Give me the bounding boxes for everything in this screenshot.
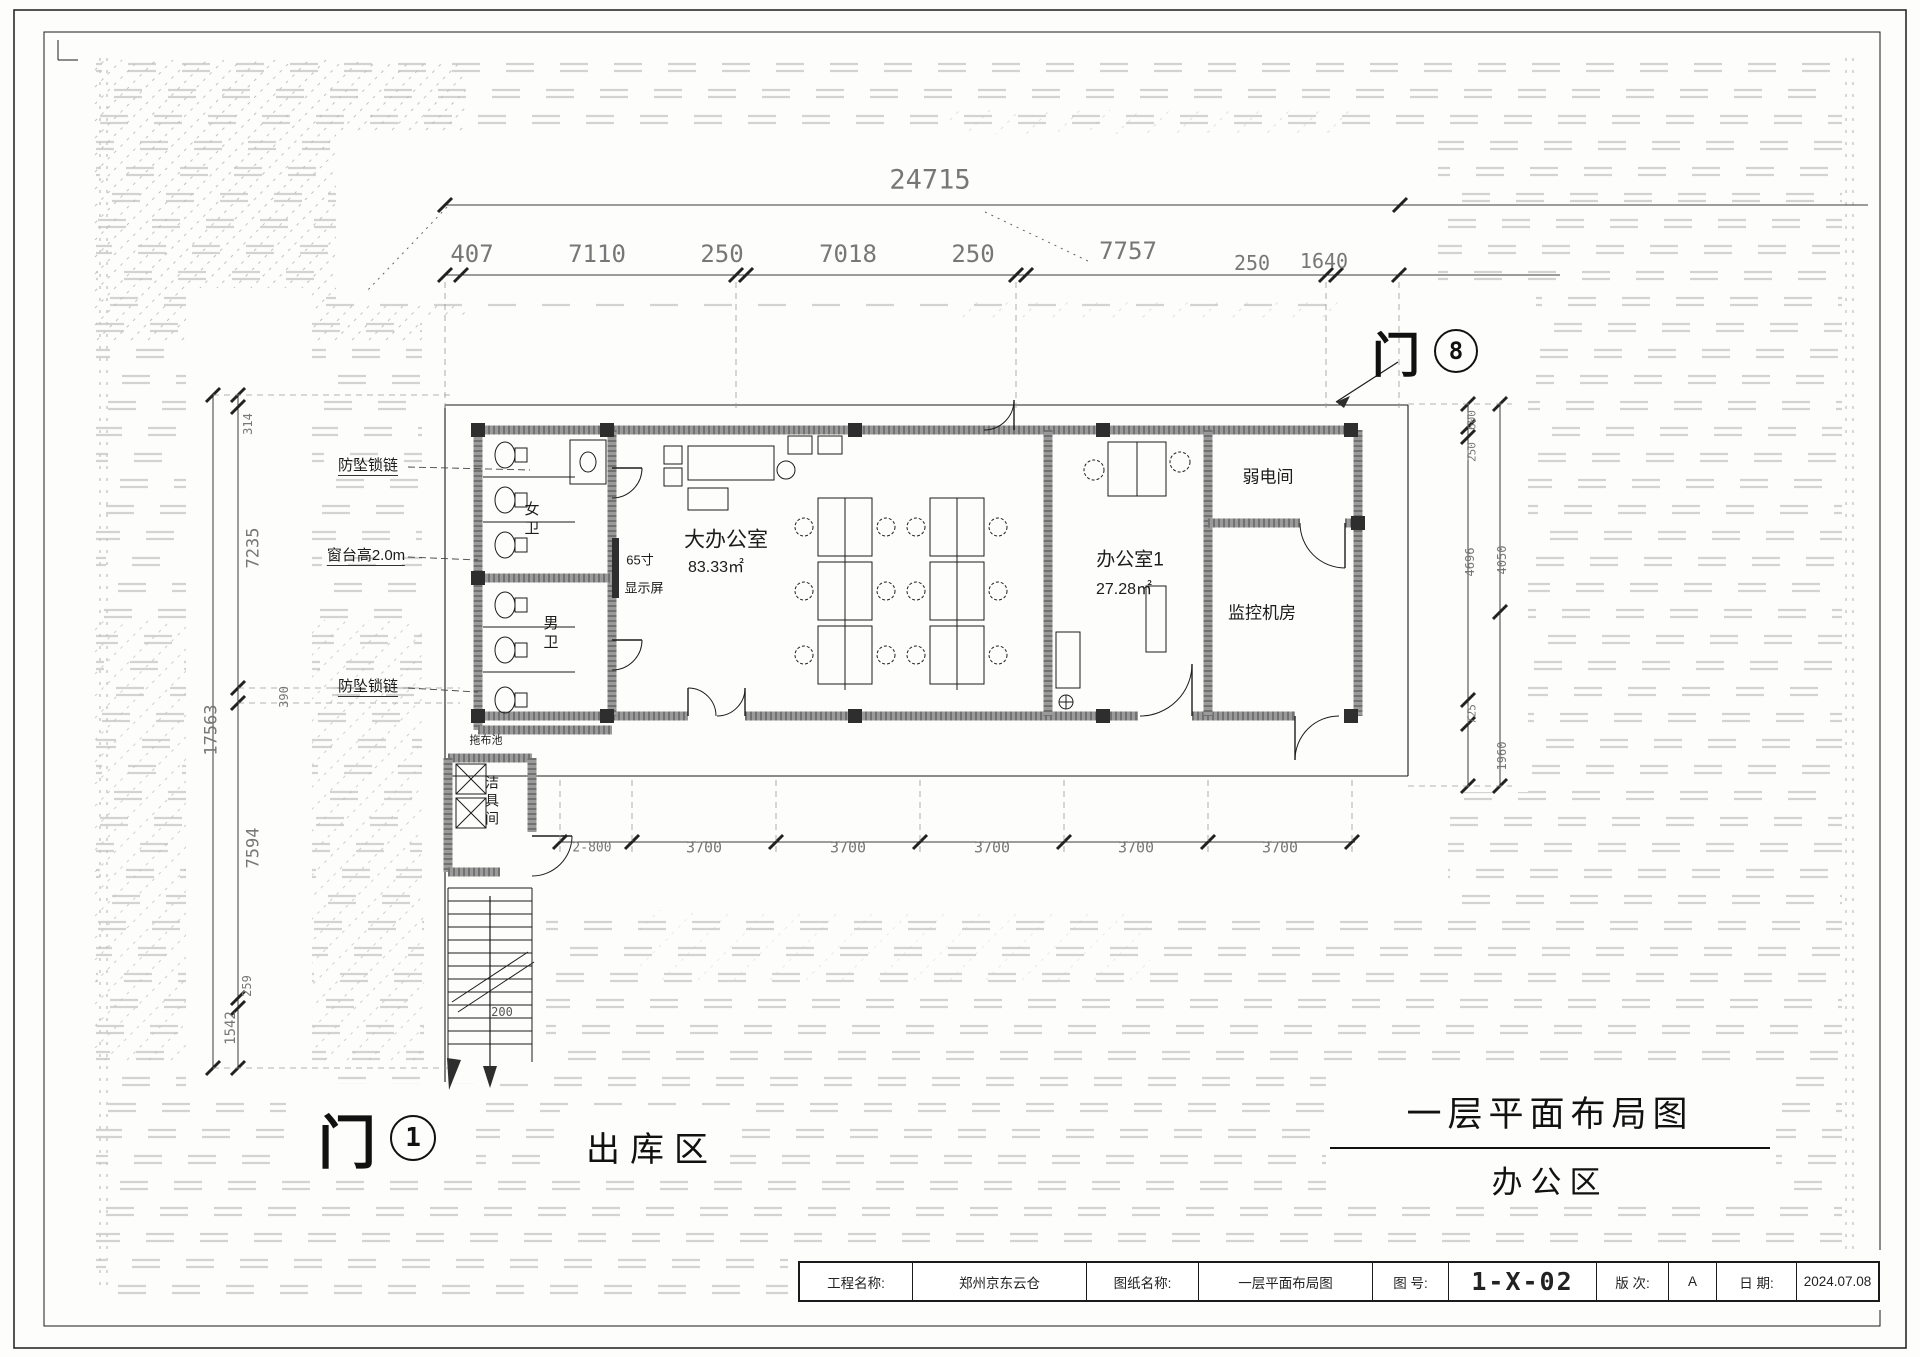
dim-left-6: 1542	[224, 1011, 238, 1045]
tb-date-label: 日 期:	[1716, 1263, 1796, 1300]
note-anti-fall-chain-2: 防坠锁链	[338, 679, 398, 697]
dim-left-total: 17563	[204, 704, 221, 755]
room-big-office: 大办公室	[684, 530, 768, 551]
dim-top-seg-8: 1640	[1300, 251, 1348, 271]
dim-corridor-1: 3700	[686, 841, 722, 856]
tb-project-value: 郑州京东云仓	[912, 1263, 1086, 1300]
tb-project-label: 工程名称:	[800, 1263, 912, 1300]
title-block: 工程名称: 郑州京东云仓 图纸名称: 一层平面布局图 图 号: 1-X-02 版…	[798, 1261, 1880, 1302]
dim-top-seg-7: 250	[1234, 253, 1270, 273]
tb-date-value: 2024.07.08	[1796, 1263, 1878, 1300]
door-8-callout: 门 8	[1372, 316, 1478, 386]
room-cleaning: 洁具间	[485, 775, 499, 829]
room-office-1: 办公室1	[1096, 551, 1164, 570]
dim-top-seg-2: 7110	[568, 242, 626, 266]
dim-corridor-3: 3700	[974, 841, 1010, 856]
note-sill-height: 窗台高2.0m	[327, 548, 405, 566]
tb-sheetname-value: 一层平面布局图	[1198, 1263, 1372, 1300]
dim-left-2: 7235	[246, 528, 263, 569]
dim-left-3: 390	[278, 686, 290, 708]
dim-right-5: 4050	[1496, 546, 1508, 575]
tb-number-label: 图 号:	[1372, 1263, 1448, 1300]
dim-corridor-4: 3700	[1118, 841, 1154, 856]
tb-sheetname-label: 图纸名称:	[1086, 1263, 1198, 1300]
dim-right-1: 600	[1467, 410, 1478, 430]
note-tv-size: 65寸	[626, 554, 653, 567]
main-title: 一层平面布局图	[1330, 1086, 1770, 1149]
dim-top-seg-1: 407	[450, 242, 493, 266]
room-big-office-area: 83.33㎡	[688, 560, 744, 576]
dim-corridor-2: 3700	[830, 841, 866, 856]
note-anti-fall-chain-1: 防坠锁链	[338, 458, 398, 476]
dim-top-seg-5: 250	[951, 242, 994, 266]
dim-top-seg-4: 7018	[819, 242, 877, 266]
tb-number-value: 1-X-02	[1448, 1263, 1596, 1300]
room-men-wc: 男卫	[543, 615, 558, 653]
door-8-number-badge: 8	[1434, 329, 1478, 373]
dim-left-5: 259	[241, 975, 253, 997]
note-mop-sink: 拖布池	[470, 736, 503, 747]
door-8-char: 门	[1372, 316, 1420, 386]
door-1-callout: 门 1	[318, 1096, 436, 1180]
drawing-sheet: 247154077110250701825077572501640防坠锁链窗台高…	[0, 0, 1920, 1357]
dim-top-seg-6: 7757	[1099, 239, 1157, 263]
dim-top-total: 24715	[889, 167, 970, 194]
room-women-wc: 女卫	[524, 501, 539, 539]
dim-corridor-step: 2-800	[572, 842, 611, 855]
room-office-1-area: 27.28㎡	[1096, 582, 1152, 598]
outbound-area-label: 出库区	[586, 1122, 718, 1171]
door-1-char: 门	[318, 1096, 376, 1180]
tb-revision-value: A	[1668, 1263, 1716, 1300]
dim-right-2: 250	[1467, 442, 1478, 462]
dim-right-3: 4696	[1464, 548, 1476, 577]
dim-right-6: 1960	[1496, 742, 1508, 771]
tb-revision-label: 版 次:	[1596, 1263, 1668, 1300]
drawing-title: 一层平面布局图 办公区	[1330, 1086, 1770, 1202]
door-1-number-badge: 1	[390, 1115, 436, 1161]
dim-left-1: 314	[242, 413, 254, 435]
dim-top-seg-3: 250	[700, 242, 743, 266]
note-tv-screen: 显示屏	[624, 582, 663, 595]
room-weak-current: 弱电间	[1243, 469, 1294, 486]
dim-corridor-5: 3700	[1262, 841, 1298, 856]
room-monitor: 监控机房	[1228, 605, 1296, 622]
sub-title: 办公区	[1330, 1149, 1770, 1202]
dim-stair-width: 200	[491, 1006, 513, 1018]
dim-right-4: 725	[1467, 704, 1478, 724]
dim-left-4: 7594	[246, 828, 263, 869]
